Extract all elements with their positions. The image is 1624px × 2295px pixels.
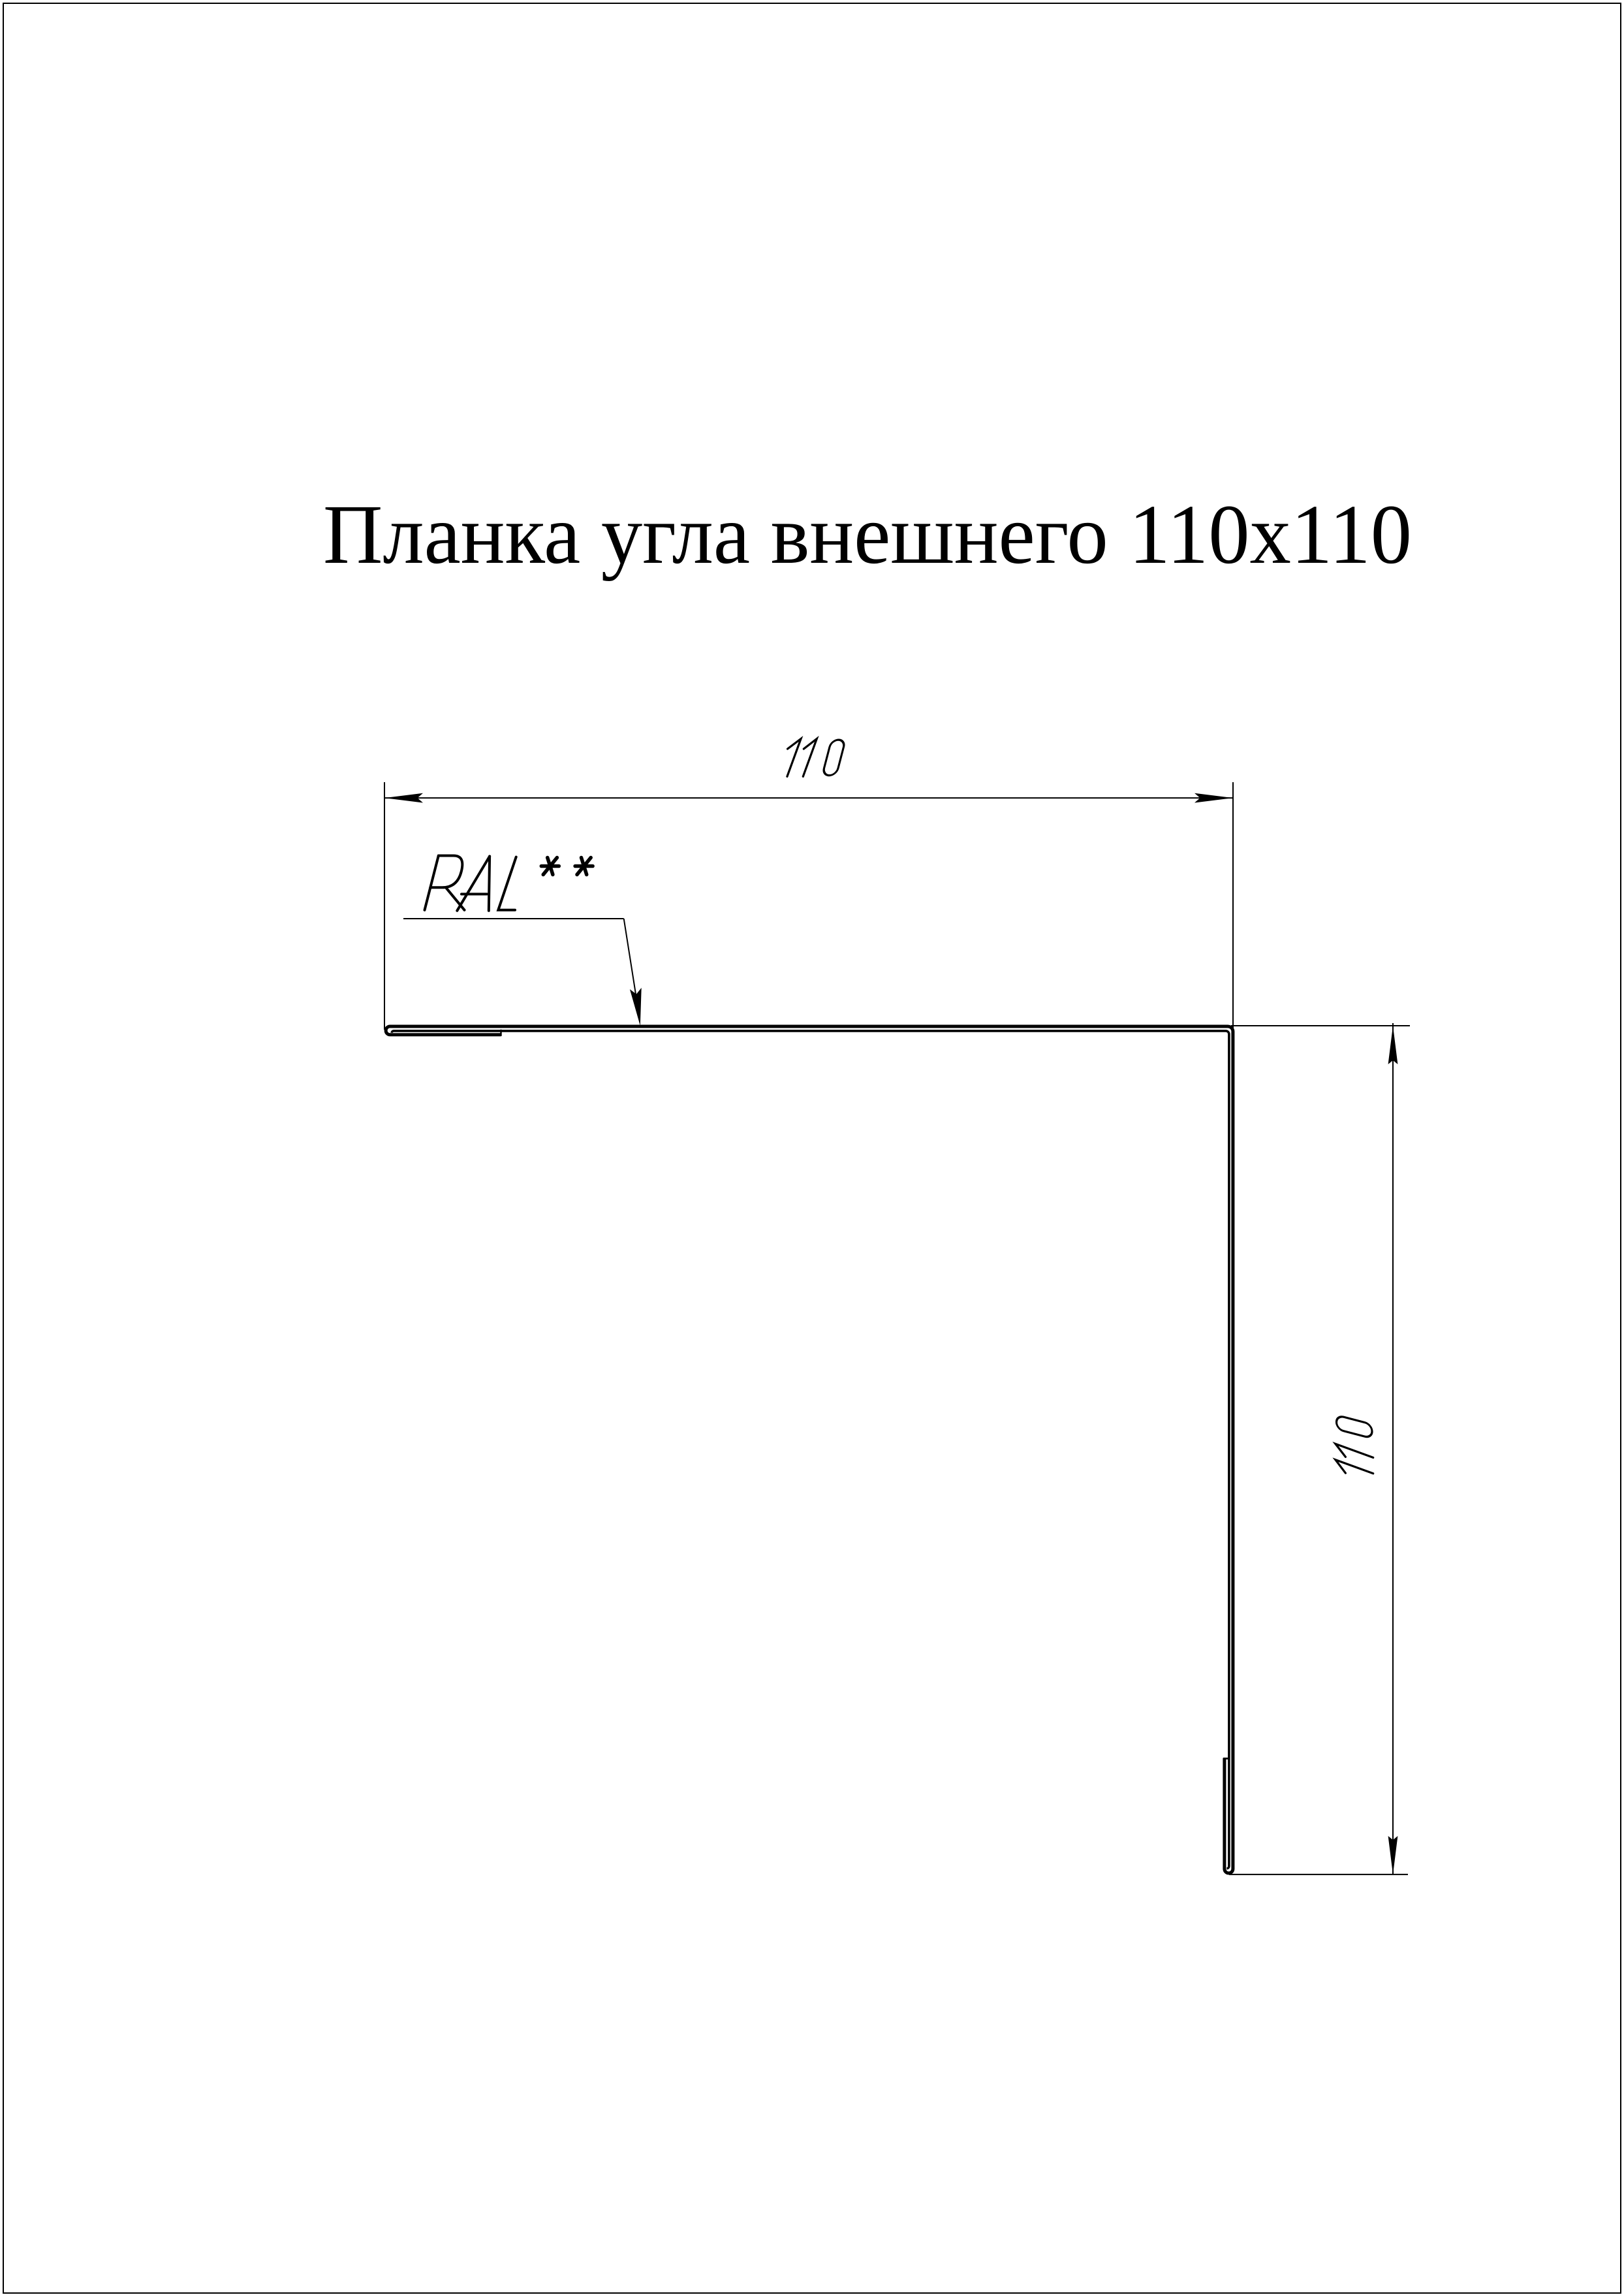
svg-text:Планка угла внешнего 110х110: Планка угла внешнего 110х110 bbox=[323, 488, 1412, 582]
